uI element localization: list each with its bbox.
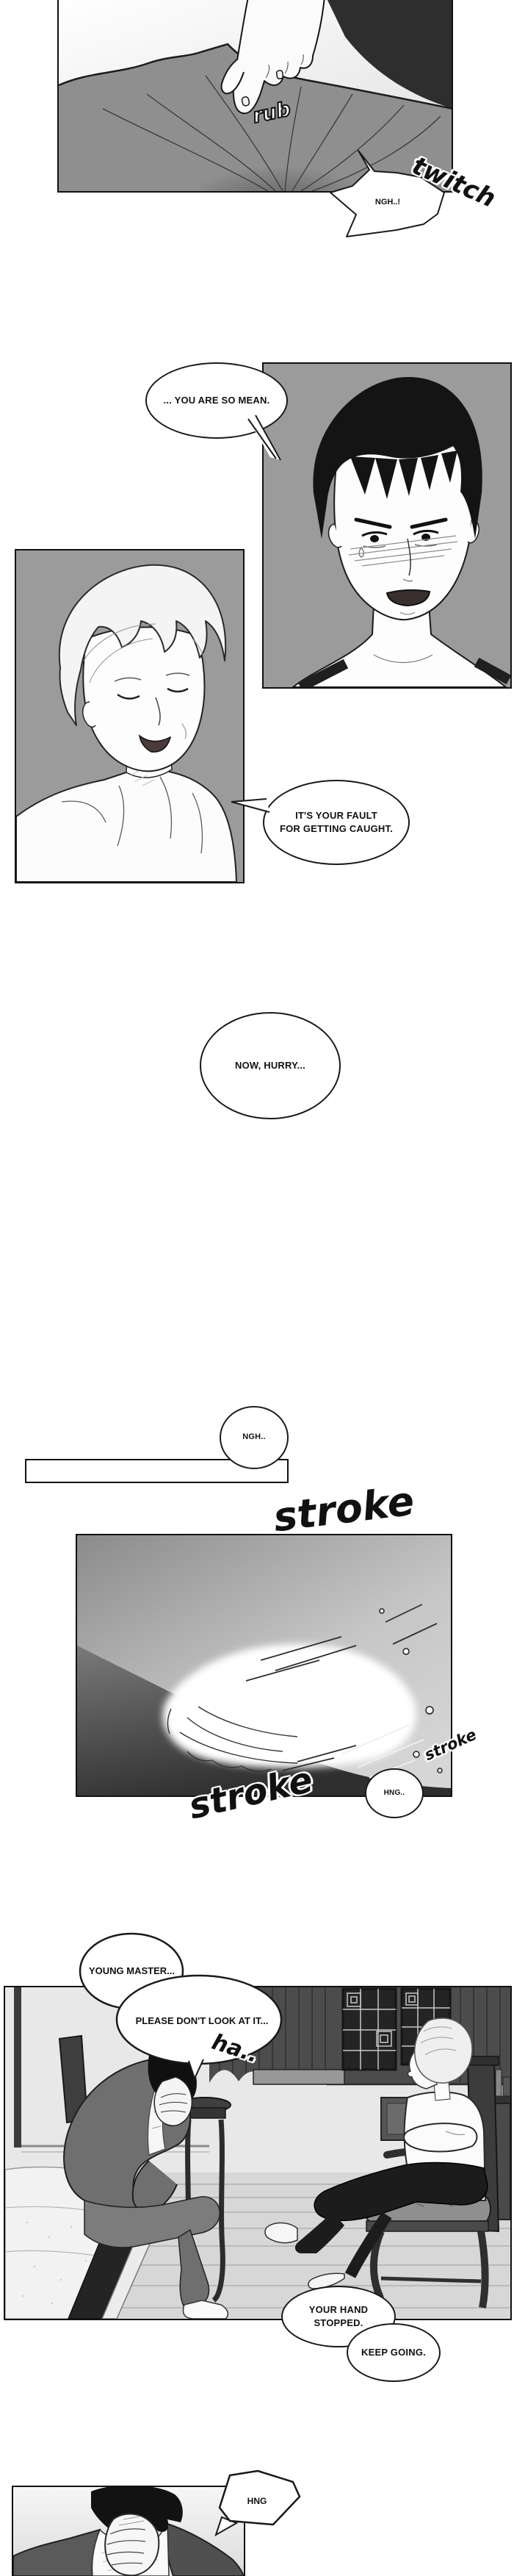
speech-text-young-master: YOUNG MASTER... [82, 1965, 181, 1978]
panel-blond-man [15, 549, 245, 883]
speech-text-mean: ... YOU ARE SO MEAN. [159, 392, 275, 409]
comic-page: rub NGH..! twitch [0, 0, 514, 2576]
speech-text-hng2: HNG [220, 2495, 294, 2508]
panel-dark-haired-man [262, 362, 512, 689]
speech-bubble-hurry: NOW, HURRY... [200, 1012, 341, 1119]
speech-text-ngh2: NGH.. [238, 1430, 270, 1444]
panel-man-covering-face-art [13, 2487, 244, 2576]
speech-bubble-mean-tail [242, 412, 294, 470]
speech-bubble-hng1: HNG.. [365, 1768, 424, 1818]
speech-text-ngh1: NGH..! [344, 197, 432, 208]
speech-text-hng1: HNG.. [380, 1787, 410, 1800]
speech-bubble-keep-going: KEEP GOING. [347, 2323, 441, 2382]
speech-text-fault: IT'S YOUR FAULT FOR GETTING CAUGHT. [275, 808, 397, 837]
speech-text-fault-line1: IT'S YOUR FAULT [295, 810, 377, 821]
panel-blond-man-art [16, 550, 243, 882]
panel-stroking-hand [76, 1534, 452, 1797]
panel-stroking-hand-art [77, 1535, 451, 1795]
speech-bubble-fault-tail [224, 790, 275, 827]
speech-bubble-fault: IT'S YOUR FAULT FOR GETTING CAUGHT. [263, 780, 410, 865]
sfx-stroke-top: stroke [271, 1478, 417, 1541]
panel-dark-haired-man-art [264, 364, 510, 687]
speech-bubble-young-master [77, 1931, 290, 2082]
speech-text-dont-look: PLEASE DON'T LOOK AT IT... [125, 2014, 279, 2028]
speech-text-fault-line2: FOR GETTING CAUGHT. [280, 823, 393, 834]
speech-text-hurry: NOW, HURRY... [231, 1058, 310, 1074]
panel-man-covering-face [12, 2486, 245, 2576]
speech-bubble-ngh2: NGH.. [220, 1406, 289, 1469]
speech-text-keep-going: KEEP GOING. [357, 2344, 430, 2361]
